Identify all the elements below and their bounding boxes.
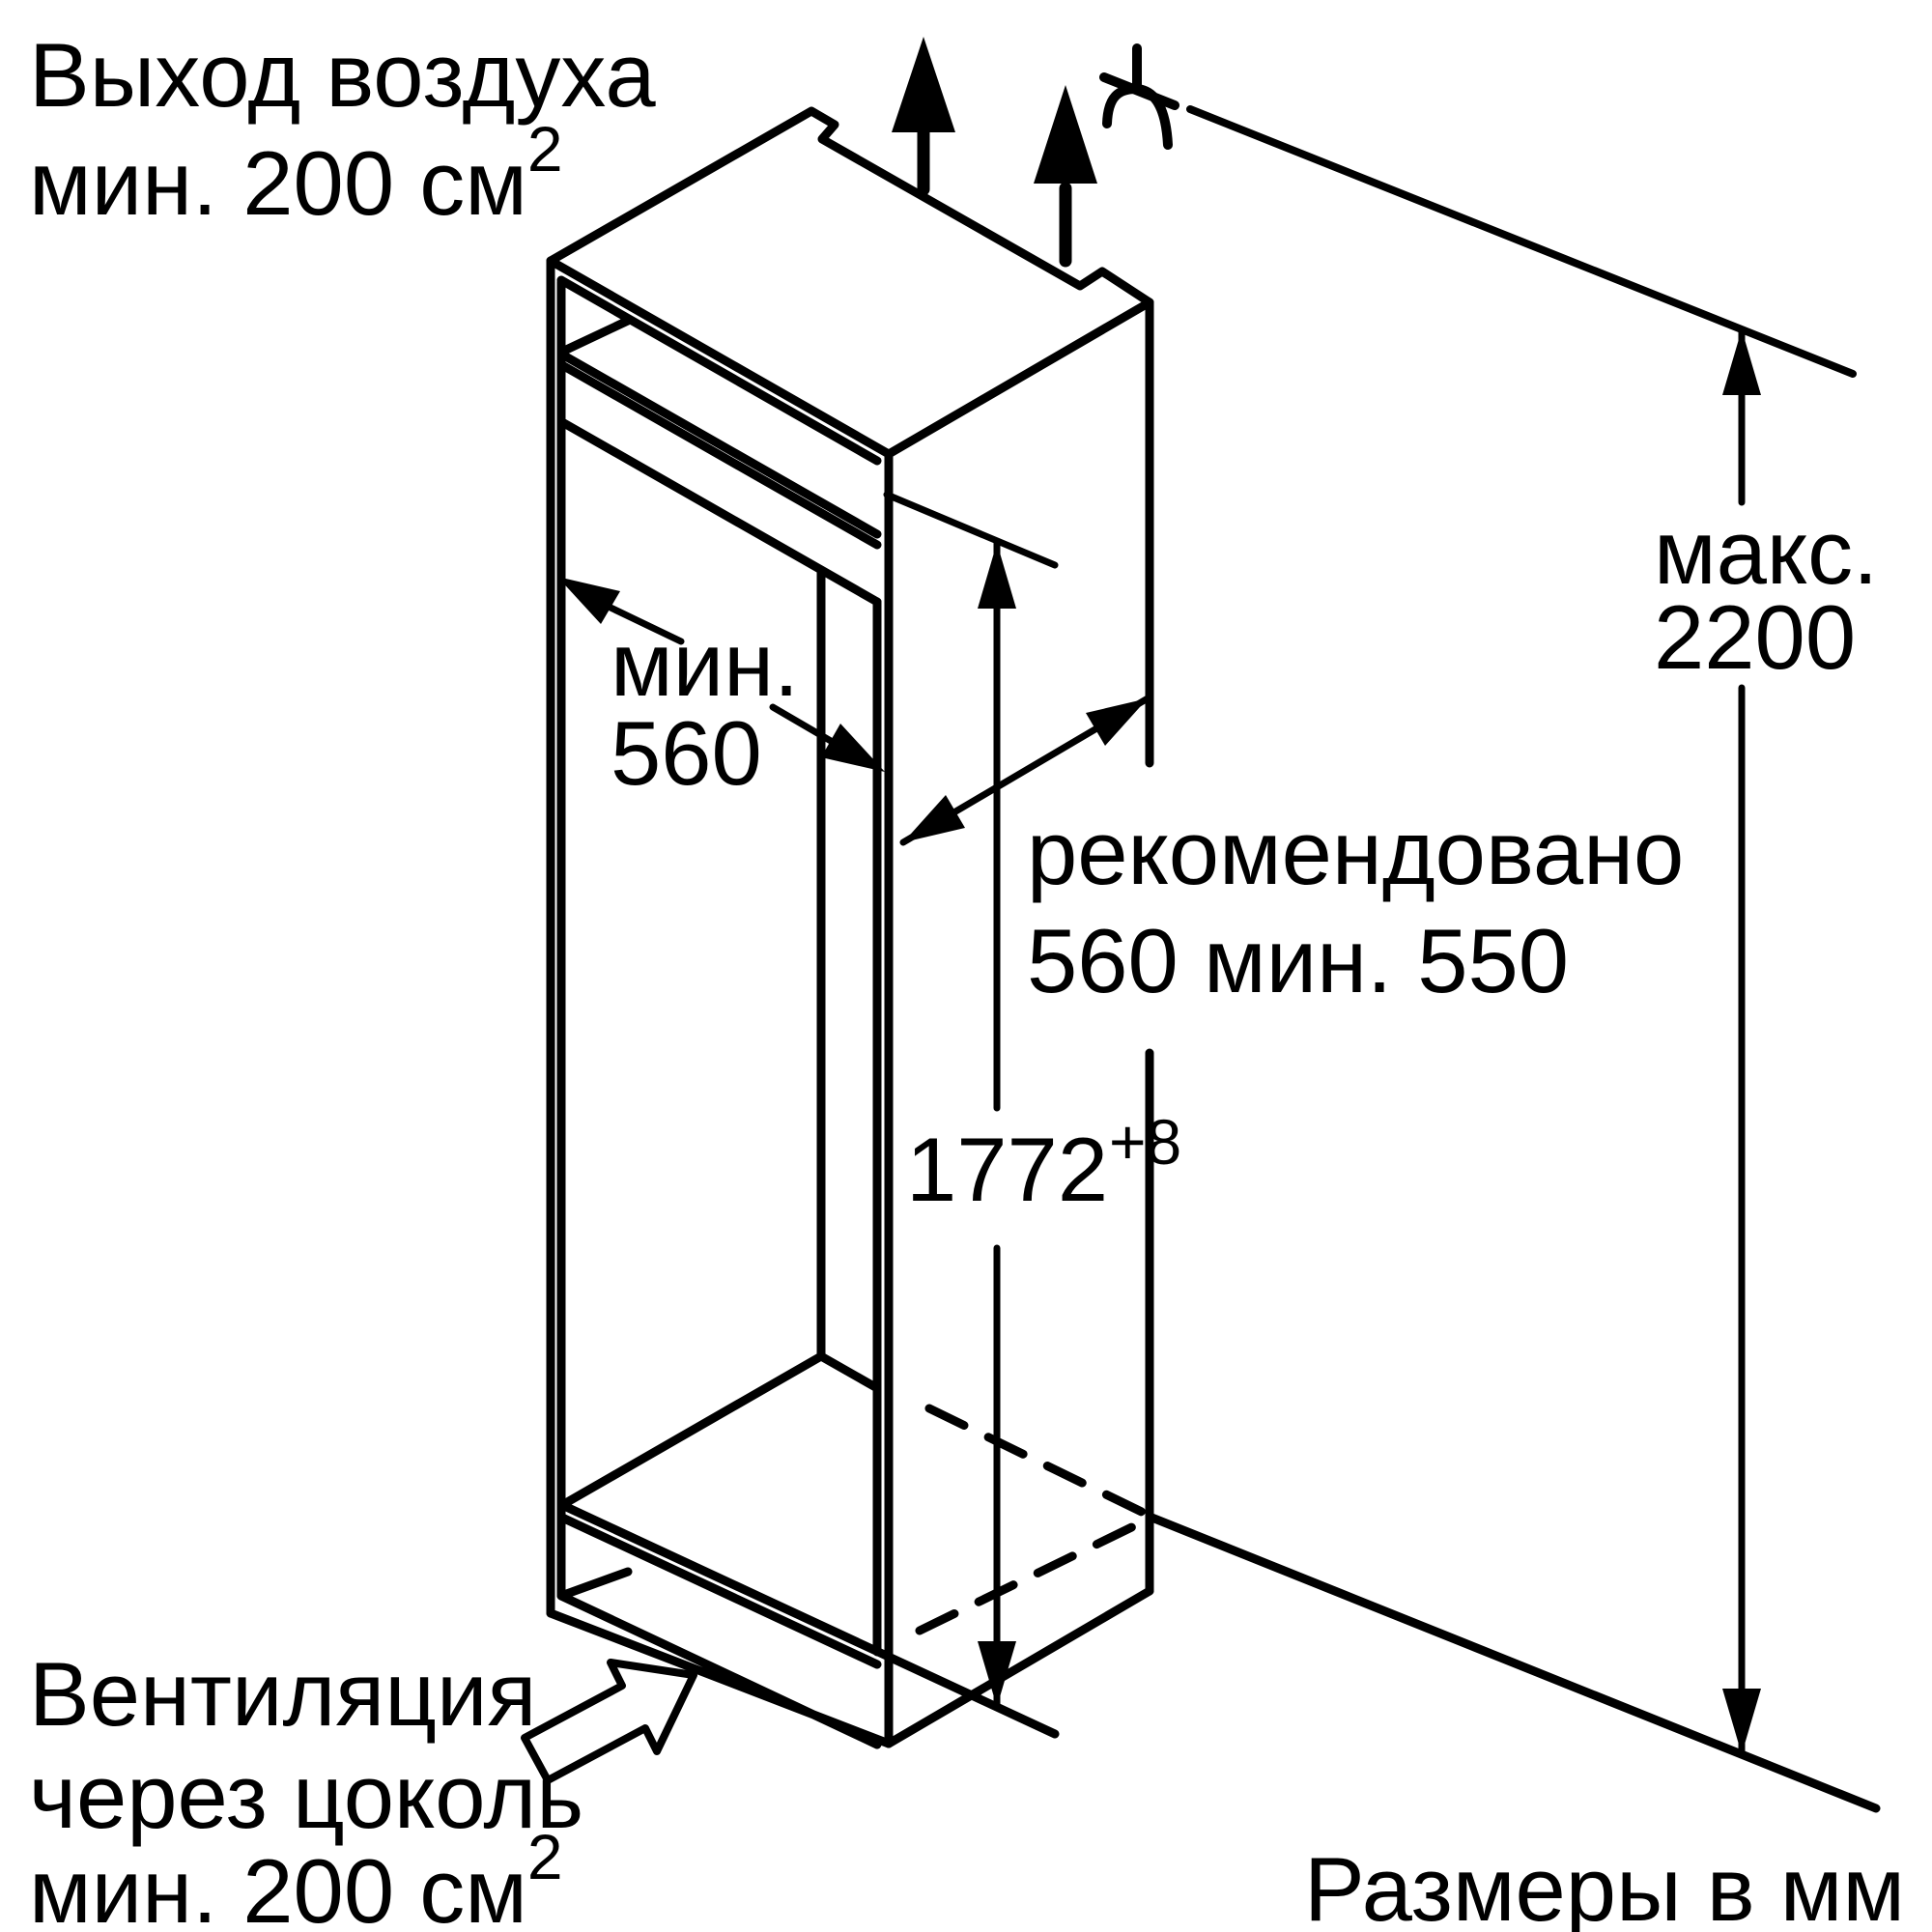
height-dim-value: 1772 — [906, 1119, 1108, 1220]
floor-baseline — [1150, 1517, 1876, 1808]
plinth-vent-label-line2: через цоколь — [29, 1746, 583, 1847]
depth-dimension: рекомендовано 560 мин. 550 — [903, 698, 1684, 1011]
height-ceiling-ref-line — [887, 495, 1055, 565]
height-dimension: 1772 +8 — [887, 495, 1181, 1707]
front-top-slot-and-rail-edges — [561, 280, 877, 602]
width-dim-label-line1: мин. — [611, 613, 799, 715]
height-dim-tolerance: +8 — [1109, 1106, 1181, 1178]
plinth-vent-label-line1: Вентиляция — [29, 1643, 536, 1745]
max-height-top-arrowhead — [1722, 329, 1761, 395]
niche-inner-vertical-edges — [561, 282, 877, 1652]
width-dim-label-line2: 560 — [611, 702, 762, 804]
depth-dim-label-line1: рекомендовано — [1027, 802, 1684, 903]
height-top-arrowhead — [978, 543, 1016, 609]
air-flow-arrowhead-icon — [1034, 85, 1097, 184]
hidden-floor-edges-dashed — [920, 1408, 1150, 1631]
air-flow-arrowhead-icon — [892, 37, 955, 132]
air-outlet-label-line1: Выход воздуха — [29, 24, 656, 126]
depth-dim-label-line2: 560 мин. 550 — [1027, 910, 1569, 1011]
installation-diagram: мин. 560 рекомендовано 560 мин. 550 1772… — [0, 0, 1932, 1932]
max-height-label-line2: 2200 — [1654, 586, 1856, 688]
units-note: Размеры в мм — [1304, 1838, 1905, 1932]
width-dimension: мин. 560 — [557, 577, 885, 804]
depth-lower-arrowhead — [903, 795, 965, 842]
depth-upper-arrowhead — [1086, 698, 1148, 746]
ceiling-reference-line — [1190, 109, 1853, 374]
air-outlet-label-line2: мин. 200 см2 — [29, 113, 563, 234]
power-cord-icon — [1104, 48, 1175, 145]
air-outlet-arrows — [892, 37, 1097, 261]
diagram-canvas: мин. 560 рекомендовано 560 мин. 550 1772… — [0, 0, 1932, 1932]
plinth-vent-label: Вентиляция через цоколь мин. 200 см2 — [29, 1643, 583, 1932]
air-outlet-label: Выход воздуха мин. 200 см2 — [29, 24, 656, 234]
max-height-dimension: макс. 2200 — [1654, 329, 1878, 1754]
